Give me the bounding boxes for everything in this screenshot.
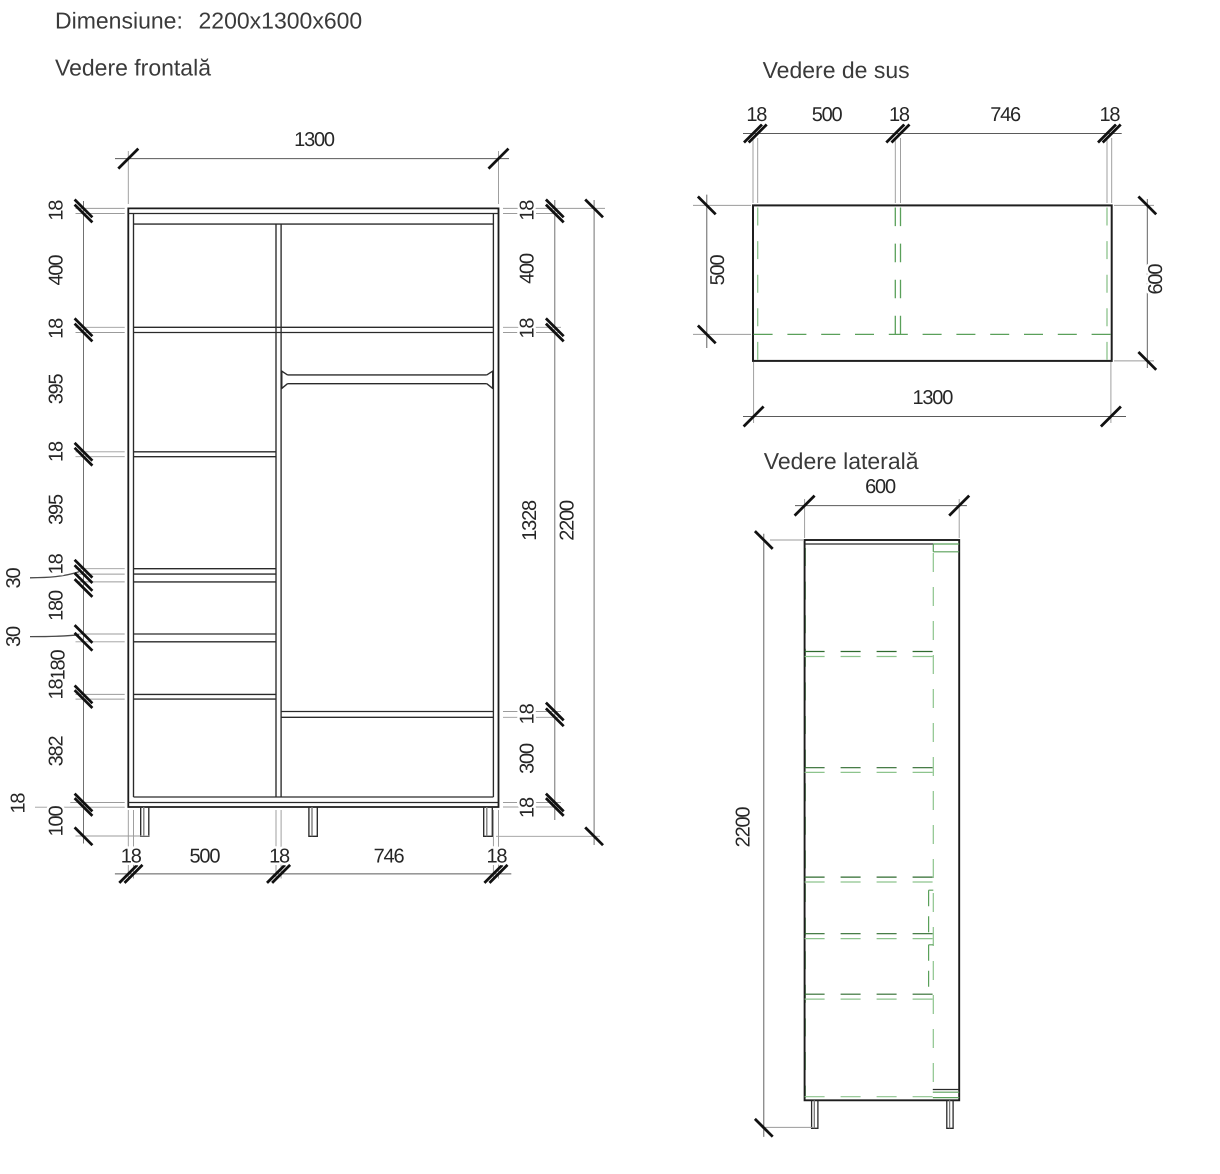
svg-text:180: 180 — [46, 590, 68, 621]
svg-text:18: 18 — [517, 703, 539, 724]
svg-text:18: 18 — [486, 846, 507, 868]
svg-text:18: 18 — [46, 553, 68, 574]
svg-text:18: 18 — [46, 679, 68, 700]
svg-text:30: 30 — [3, 568, 25, 589]
svg-text:18: 18 — [517, 200, 539, 221]
svg-text:300: 300 — [517, 743, 539, 774]
svg-text:180: 180 — [48, 650, 70, 681]
svg-text:395: 395 — [46, 373, 68, 404]
svg-text:18: 18 — [889, 104, 910, 126]
svg-text:2200x1300x600: 2200x1300x600 — [199, 8, 363, 34]
svg-text:18: 18 — [121, 846, 142, 868]
svg-text:1328: 1328 — [519, 500, 541, 541]
svg-text:600: 600 — [865, 476, 896, 498]
svg-text:18: 18 — [1099, 104, 1120, 126]
svg-text:382: 382 — [46, 736, 68, 767]
svg-text:18: 18 — [46, 200, 68, 221]
svg-text:Vedere laterală: Vedere laterală — [764, 448, 919, 474]
svg-text:1300: 1300 — [912, 387, 953, 409]
svg-text:18: 18 — [517, 797, 539, 818]
svg-text:400: 400 — [517, 253, 539, 284]
svg-text:395: 395 — [46, 494, 68, 525]
svg-text:18: 18 — [269, 846, 290, 868]
svg-text:500: 500 — [812, 104, 843, 126]
svg-text:2200: 2200 — [733, 807, 755, 848]
svg-text:746: 746 — [990, 104, 1021, 126]
svg-text:100: 100 — [46, 806, 68, 837]
svg-text:30: 30 — [3, 626, 25, 647]
svg-text:500: 500 — [190, 846, 221, 868]
svg-text:18: 18 — [8, 793, 30, 814]
svg-text:400: 400 — [46, 255, 68, 286]
svg-text:Vedere frontală: Vedere frontală — [55, 54, 211, 80]
svg-text:Vedere de sus: Vedere de sus — [763, 57, 910, 83]
svg-text:2200: 2200 — [557, 500, 579, 541]
svg-text:18: 18 — [746, 104, 767, 126]
svg-text:1300: 1300 — [294, 129, 335, 151]
svg-text:500: 500 — [707, 255, 729, 286]
svg-text:600: 600 — [1145, 264, 1167, 295]
svg-text:18: 18 — [46, 318, 68, 339]
svg-text:18: 18 — [517, 318, 539, 339]
svg-text:18: 18 — [46, 441, 68, 462]
svg-text:Dimensiune:: Dimensiune: — [55, 8, 183, 34]
svg-text:746: 746 — [374, 846, 405, 868]
